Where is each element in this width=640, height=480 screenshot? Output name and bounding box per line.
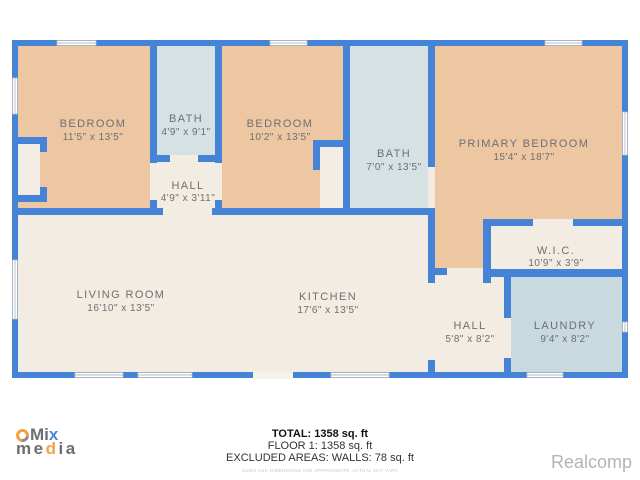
window [623, 322, 628, 332]
room-fill-bath-1 [157, 46, 215, 155]
room-dims-hall-2: 5'8" x 8'2" [445, 334, 494, 345]
excluded-area-text: EXCLUDED AREAS: WALLS: 78 sq. ft [0, 452, 640, 464]
room-label-bedroom-2: BEDROOM [247, 118, 314, 130]
room-label-hall-1: HALL [171, 180, 204, 192]
disclaimer-text: SIZES AND DIMENSIONS ARE APPROXIMATE, AC… [0, 468, 640, 473]
total-area-text: TOTAL: 1358 sq. ft [0, 428, 640, 440]
room-dims-primary-bedroom: 15'4" x 18'7" [493, 152, 554, 163]
room-dims-bedroom-2: 10'2" x 13'5" [249, 132, 310, 143]
room-dims-wic: 10'9" x 3'9" [528, 258, 583, 269]
window [527, 373, 563, 378]
room-fill-bath-2 [350, 46, 428, 208]
room-label-laundry: LAUNDRY [534, 320, 596, 332]
room-dims-bedroom-1: 11'5" x 13'5" [63, 132, 124, 143]
window [623, 112, 628, 155]
room-label-bath-2: BATH [377, 148, 411, 160]
area-summary: TOTAL: 1358 sq. ft FLOOR 1: 1358 sq. ft … [0, 428, 640, 473]
room-label-hall-2: HALL [453, 320, 486, 332]
realcomp-watermark: Realcomp [551, 452, 632, 473]
window [75, 373, 123, 378]
window [331, 373, 389, 378]
room-fill-closet-1 [18, 144, 40, 195]
room-dims-bath-1: 4'9" x 9'1" [161, 127, 210, 138]
floor-plan-drawing: BEDROOM 11'5" x 13'5" BATH 4'9" x 9'1" B… [0, 0, 640, 400]
room-dims-living-room: 16'10" x 13'5" [87, 303, 154, 314]
room-dims-bath-2: 7'0" x 13'5" [366, 162, 421, 173]
window [57, 41, 96, 46]
window [138, 373, 192, 378]
room-label-living-room: LIVING ROOM [77, 289, 166, 301]
window [13, 260, 18, 319]
room-label-bedroom-1: BEDROOM [60, 118, 127, 130]
room-label-wic: W.I.C. [537, 245, 575, 257]
window [545, 41, 582, 46]
room-label-primary-bedroom: PRIMARY BEDROOM [459, 138, 590, 150]
room-label-bath-1: BATH [169, 113, 203, 125]
floor1-area-text: FLOOR 1: 1358 sq. ft [0, 440, 640, 452]
entry-door-opening [253, 372, 293, 380]
floor-plan-page: BEDROOM 11'5" x 13'5" BATH 4'9" x 9'1" B… [0, 0, 640, 480]
room-dims-laundry: 9'4" x 8'2" [540, 334, 589, 345]
room-fill-primary-bedroom [435, 46, 622, 219]
room-dims-hall-1: 4'9" x 3'11" [161, 193, 216, 204]
room-label-kitchen: KITCHEN [299, 291, 357, 303]
room-fill-closet-2 [320, 147, 343, 208]
window [13, 78, 18, 114]
room-fill-primary-bedroom-entry [435, 219, 483, 268]
window [270, 41, 307, 46]
room-dims-kitchen: 17'6" x 13'5" [297, 305, 358, 316]
